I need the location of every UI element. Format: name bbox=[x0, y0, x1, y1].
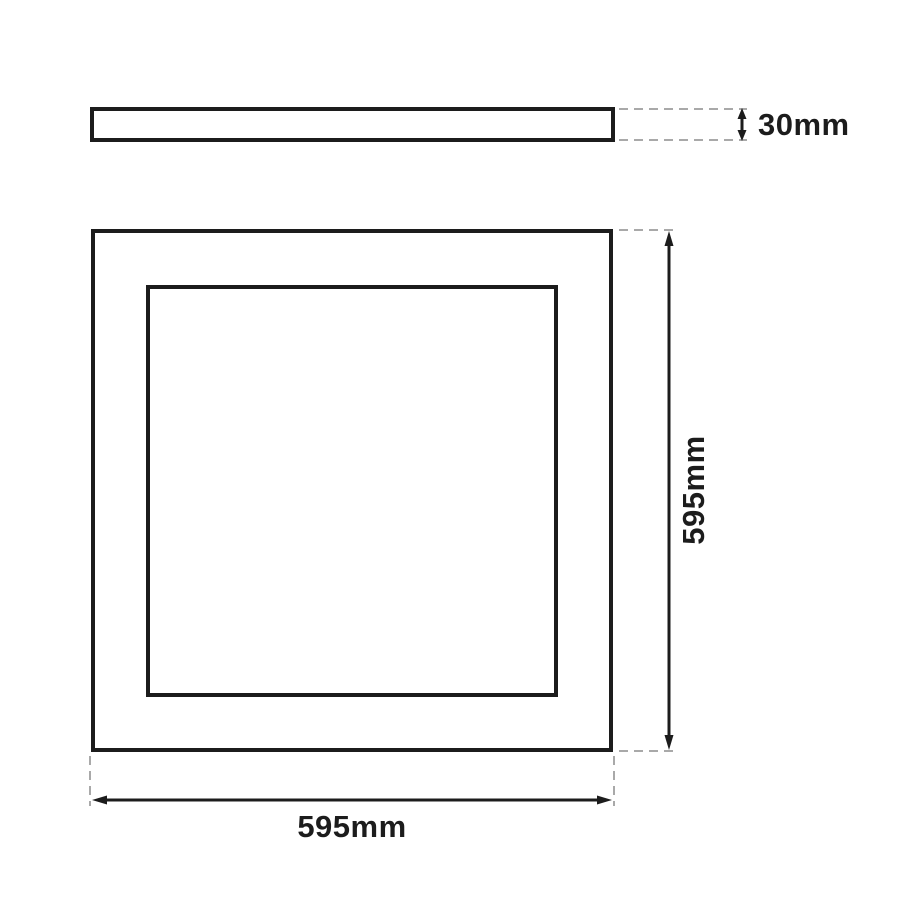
width-dimension-label: 595mm bbox=[252, 809, 452, 845]
thickness-dimension-arrow bbox=[738, 108, 747, 141]
thickness-dimension-label: 30mm bbox=[758, 107, 850, 143]
height-dimension-label: 595mm bbox=[677, 430, 711, 550]
panel-front-inner-panel bbox=[146, 285, 558, 697]
height-dimension-arrow bbox=[665, 231, 674, 750]
width-dimension-arrow bbox=[92, 796, 612, 805]
panel-side-view bbox=[90, 107, 615, 142]
panel-front-outer-frame bbox=[91, 229, 613, 752]
panel-dimension-drawing: 30mm 595mm 595mm bbox=[0, 0, 900, 900]
